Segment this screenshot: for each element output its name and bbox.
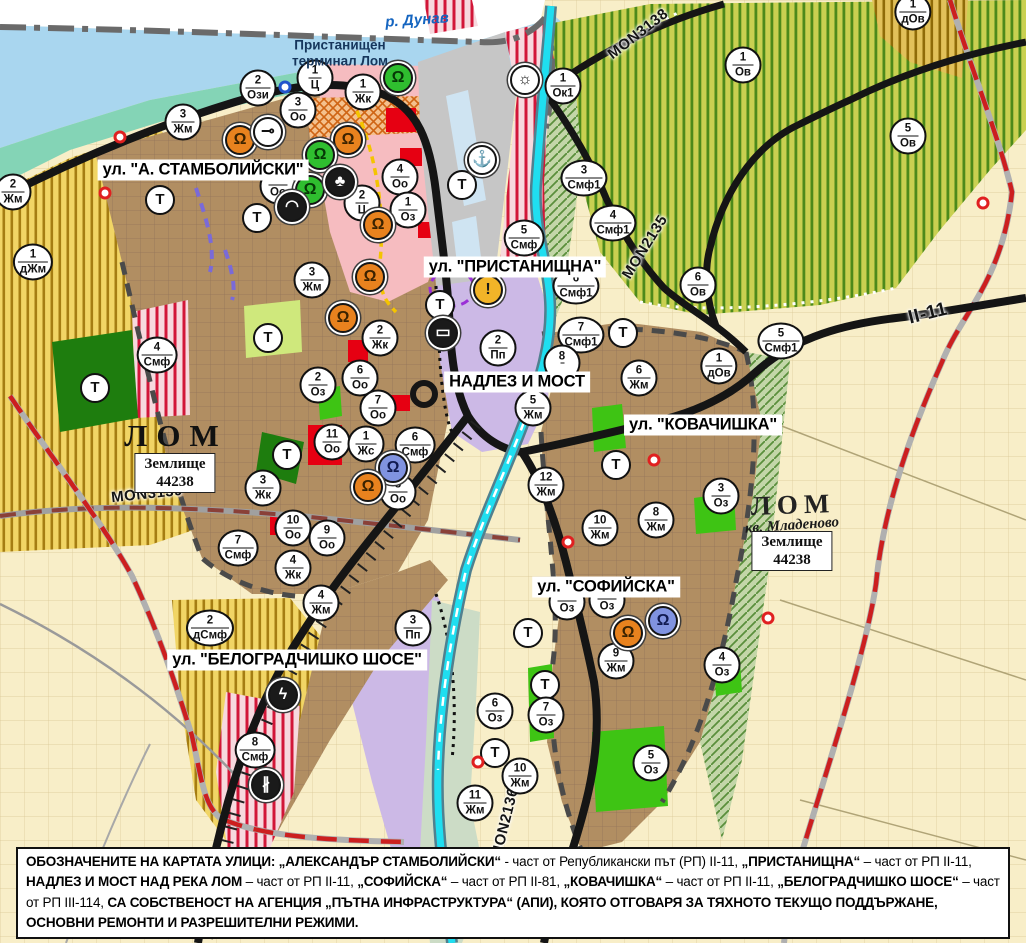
footer-text-segment: „БЕЛОГРАДЧИШКО ШОСЕ“ [777, 874, 958, 889]
footer-text-segment: – част от РП II-11, [242, 874, 357, 889]
footer-text-segment: – част от РП II-11, [662, 874, 777, 889]
zoning-map: MON3138MON2135MON3139MON2136II-11 2 Ози … [0, 0, 1026, 943]
footer-text-segment: – част от РП II-81, [447, 874, 563, 889]
footer-text-segment: - част от Републикански път (РП) II-11, [501, 854, 742, 869]
footer-text-segment: ОБОЗНАЧЕНИТЕ НА КАРТАТА УЛИЦИ: „АЛЕКСАНД… [26, 854, 501, 869]
footer-text-segment: „КОВАЧИШКА“ [563, 874, 662, 889]
map-background [0, 0, 1026, 943]
footer-note: ОБОЗНАЧЕНИТЕ НА КАРТАТА УЛИЦИ: „АЛЕКСАНД… [16, 847, 1010, 939]
footer-text-segment: НАДЛЕЗ И МОСТ НАД РЕКА ЛОМ [26, 874, 242, 889]
footer-text-segment: – част от РП II-11, [860, 854, 972, 869]
footer-text-segment: СА СОБСТВЕНОСТ НА АГЕНЦИЯ „ПЪТНА ИНФРАСТ… [26, 895, 938, 930]
footer-text-segment: „ПРИСТАНИЩНА“ [742, 854, 861, 869]
footer-text-segment: „СОФИЙСКА“ [357, 874, 447, 889]
